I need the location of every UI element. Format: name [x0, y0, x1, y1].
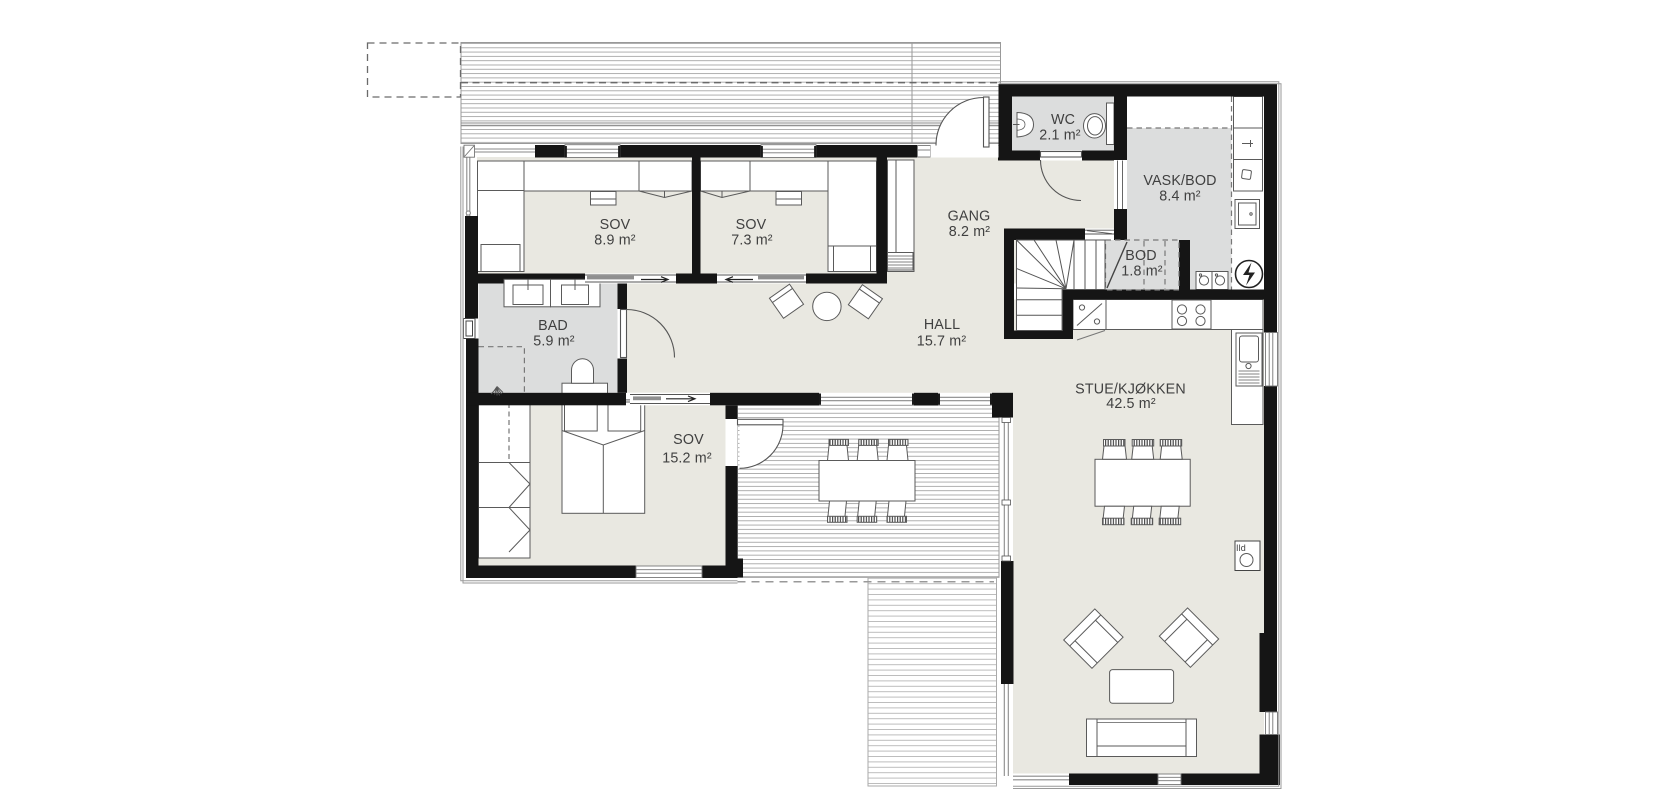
svg-text:7.3 m²: 7.3 m²: [731, 233, 773, 249]
svg-text:SOV: SOV: [600, 217, 631, 233]
svg-text:BOD: BOD: [1125, 248, 1156, 264]
svg-text:BAD: BAD: [538, 318, 568, 334]
svg-text:2.1 m²: 2.1 m²: [1039, 128, 1081, 144]
svg-text:42.5 m²: 42.5 m²: [1106, 396, 1156, 412]
svg-text:15.2 m²: 15.2 m²: [662, 451, 712, 467]
svg-text:VASK/BOD: VASK/BOD: [1143, 173, 1216, 189]
svg-text:8.2 m²: 8.2 m²: [949, 224, 991, 240]
svg-text:GANG: GANG: [948, 209, 991, 225]
svg-text:HALL: HALL: [924, 317, 960, 333]
svg-text:15.7 m²: 15.7 m²: [917, 334, 967, 350]
svg-text:SOV: SOV: [736, 217, 767, 233]
svg-text:5.9 m²: 5.9 m²: [533, 334, 575, 350]
svg-text:8.9 m²: 8.9 m²: [594, 233, 636, 249]
svg-text:WC: WC: [1051, 112, 1075, 128]
svg-text:SOV: SOV: [673, 432, 704, 448]
svg-text:8.4 m²: 8.4 m²: [1159, 189, 1201, 205]
svg-text:1.8 m²: 1.8 m²: [1121, 264, 1163, 280]
svg-text:Ild: Ild: [1236, 543, 1246, 553]
